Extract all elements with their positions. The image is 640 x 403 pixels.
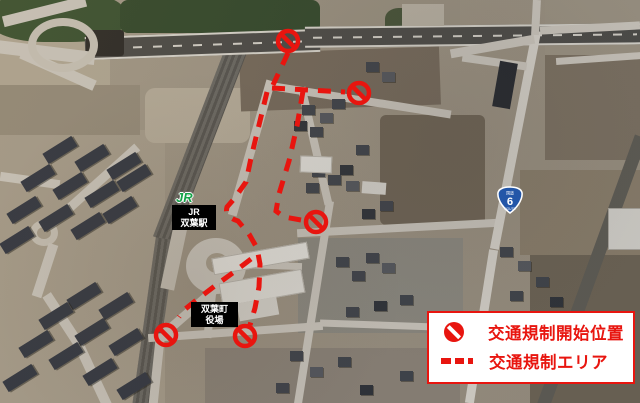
legend-label: 交通規制開始位置 (488, 320, 624, 344)
legend: 交通規制開始位置 交通規制エリア (427, 311, 635, 384)
legend-item-start-position: 交通規制開始位置 (429, 320, 633, 344)
town-hall-label: 双葉町 役場 (191, 302, 238, 327)
regulation-area-dashed-line (272, 88, 345, 92)
station-label-line1: JR (174, 207, 214, 218)
no-entry-icon (156, 325, 176, 345)
no-entry-icon (306, 212, 326, 232)
satellite-map: JR JR 双葉駅 双葉町 役場 国道 6 ROUTE 交通規制開始位置 交通規… (0, 0, 640, 403)
regulation-area-dashed-line (276, 91, 303, 220)
town-hall-label-line2: 役場 (193, 315, 236, 326)
station-label: JR 双葉駅 (172, 205, 216, 230)
no-entry-icon (444, 322, 464, 342)
regulation-area-dashed-line (273, 53, 288, 85)
route6-shield-number: 6 (507, 196, 513, 208)
no-entry-icon (235, 326, 255, 346)
route6-shield-bottom-text: ROUTE (504, 207, 516, 211)
legend-label: 交通規制エリア (489, 349, 608, 373)
regulation-area-dashed-line (226, 92, 267, 325)
no-entry-icon (349, 83, 369, 103)
town-hall-label-line1: 双葉町 (193, 304, 236, 315)
route6-shield: 国道 6 ROUTE (497, 186, 523, 214)
no-entry-icon (278, 31, 298, 51)
station-label-line2: 双葉駅 (174, 218, 214, 229)
jr-logo: JR (176, 190, 193, 205)
route6-shield-top-text: 国道 (506, 190, 514, 195)
dashed-line-icon (441, 358, 473, 364)
legend-item-regulation-area: 交通規制エリア (429, 349, 633, 373)
